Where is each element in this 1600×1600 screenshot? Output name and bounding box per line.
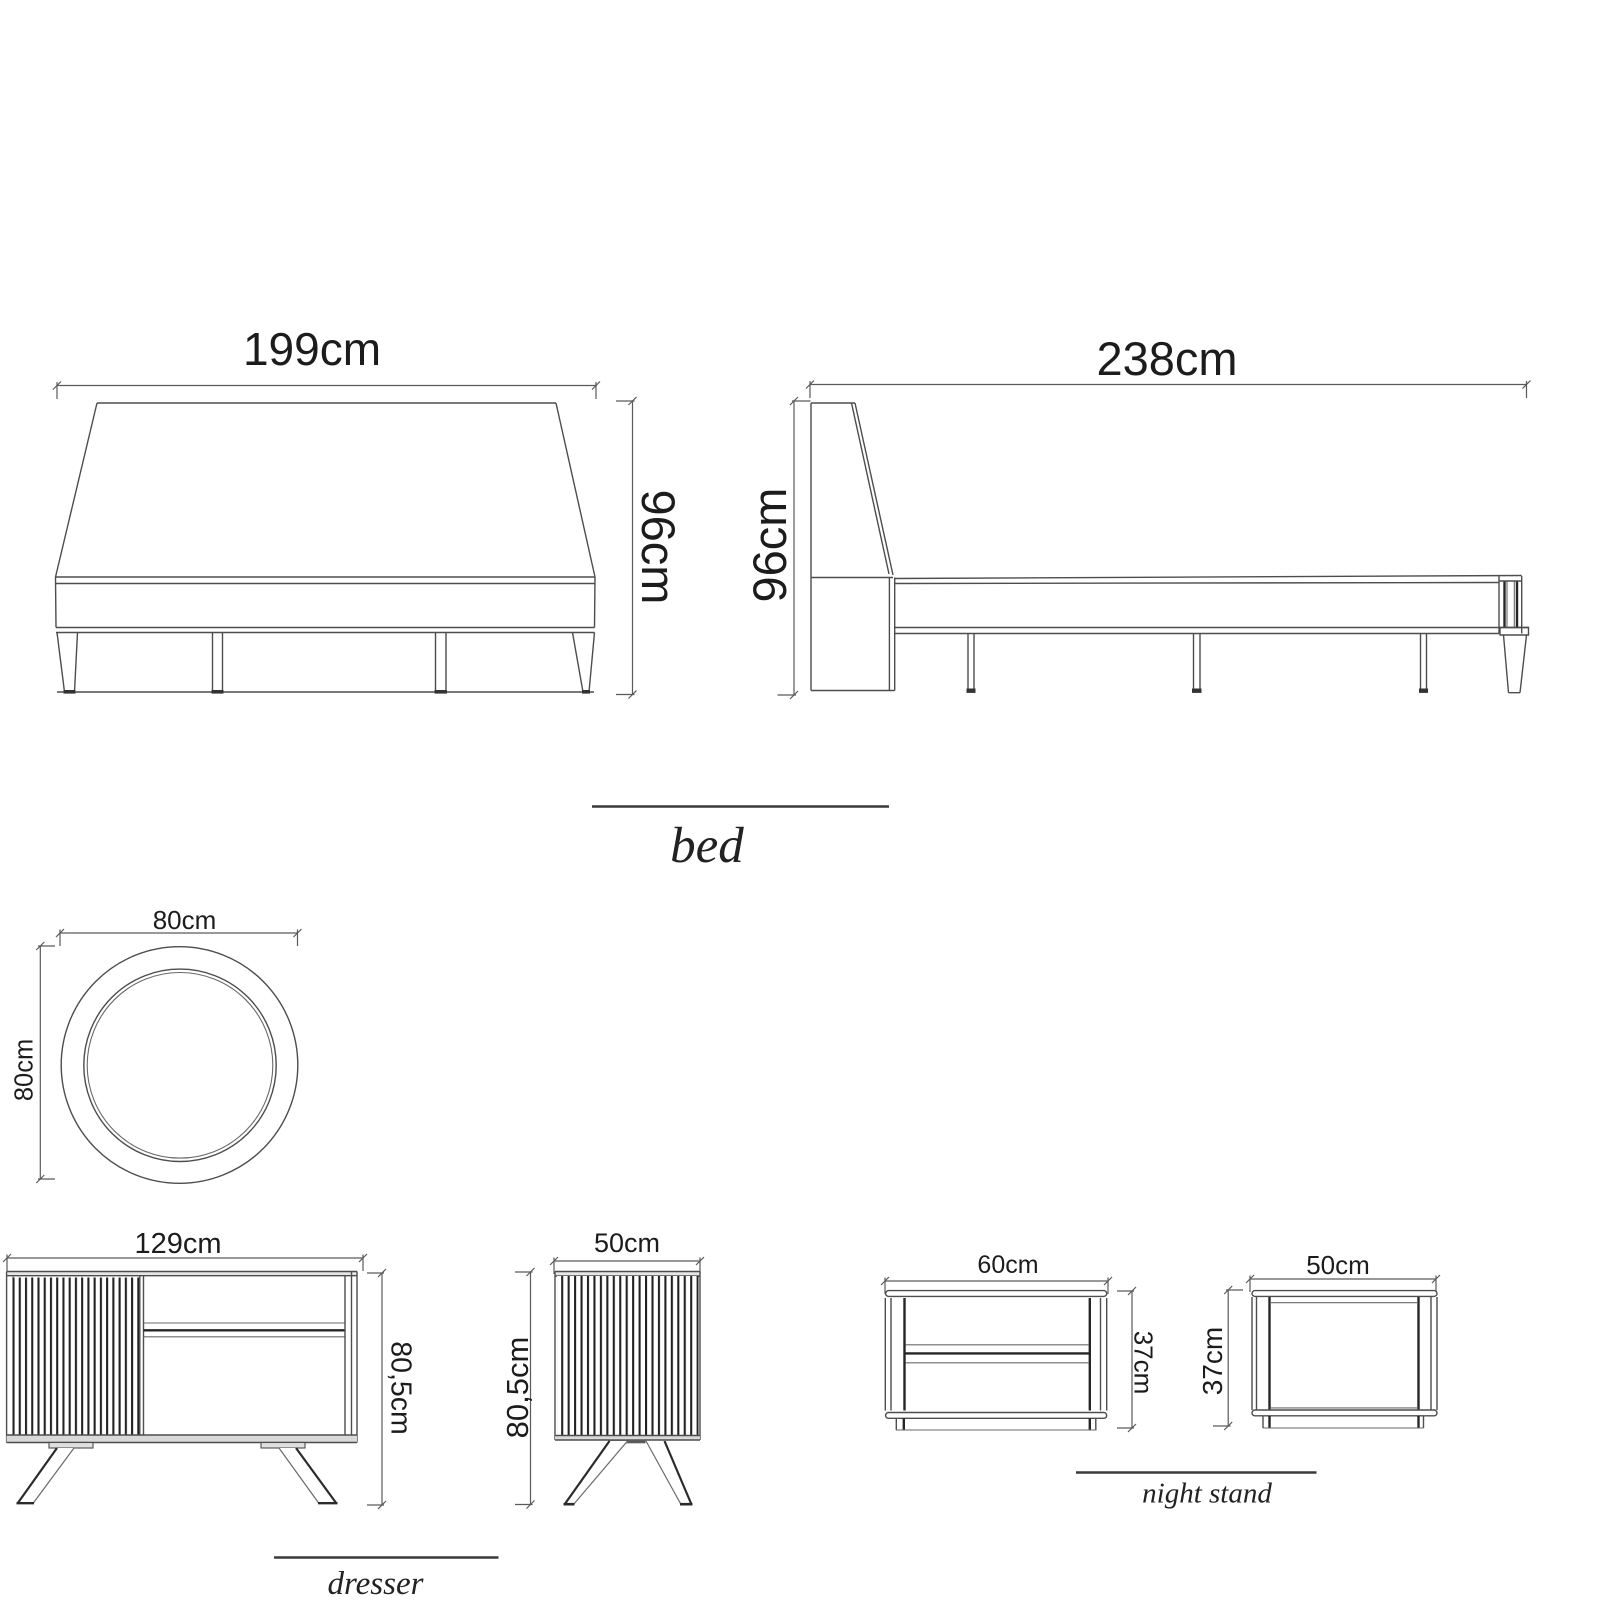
svg-text:80,5cm: 80,5cm: [385, 1341, 417, 1434]
svg-text:129cm: 129cm: [134, 1228, 221, 1260]
svg-text:80,5cm: 80,5cm: [500, 1337, 535, 1439]
svg-text:80cm: 80cm: [11, 1039, 39, 1101]
svg-text:60cm: 60cm: [977, 1251, 1038, 1279]
svg-text:37cm: 37cm: [1197, 1327, 1228, 1395]
svg-text:dresser: dresser: [328, 1566, 424, 1600]
svg-text:50cm: 50cm: [594, 1228, 660, 1258]
svg-text:night stand: night stand: [1142, 1478, 1272, 1510]
svg-text:96cm: 96cm: [632, 490, 685, 605]
svg-text:80cm: 80cm: [153, 905, 217, 935]
svg-text:bed: bed: [670, 818, 744, 874]
svg-text:199cm: 199cm: [243, 323, 381, 375]
svg-text:96cm: 96cm: [743, 488, 796, 603]
svg-text:50cm: 50cm: [1306, 1250, 1370, 1280]
svg-text:37cm: 37cm: [1129, 1331, 1159, 1395]
svg-text:238cm: 238cm: [1096, 332, 1237, 385]
